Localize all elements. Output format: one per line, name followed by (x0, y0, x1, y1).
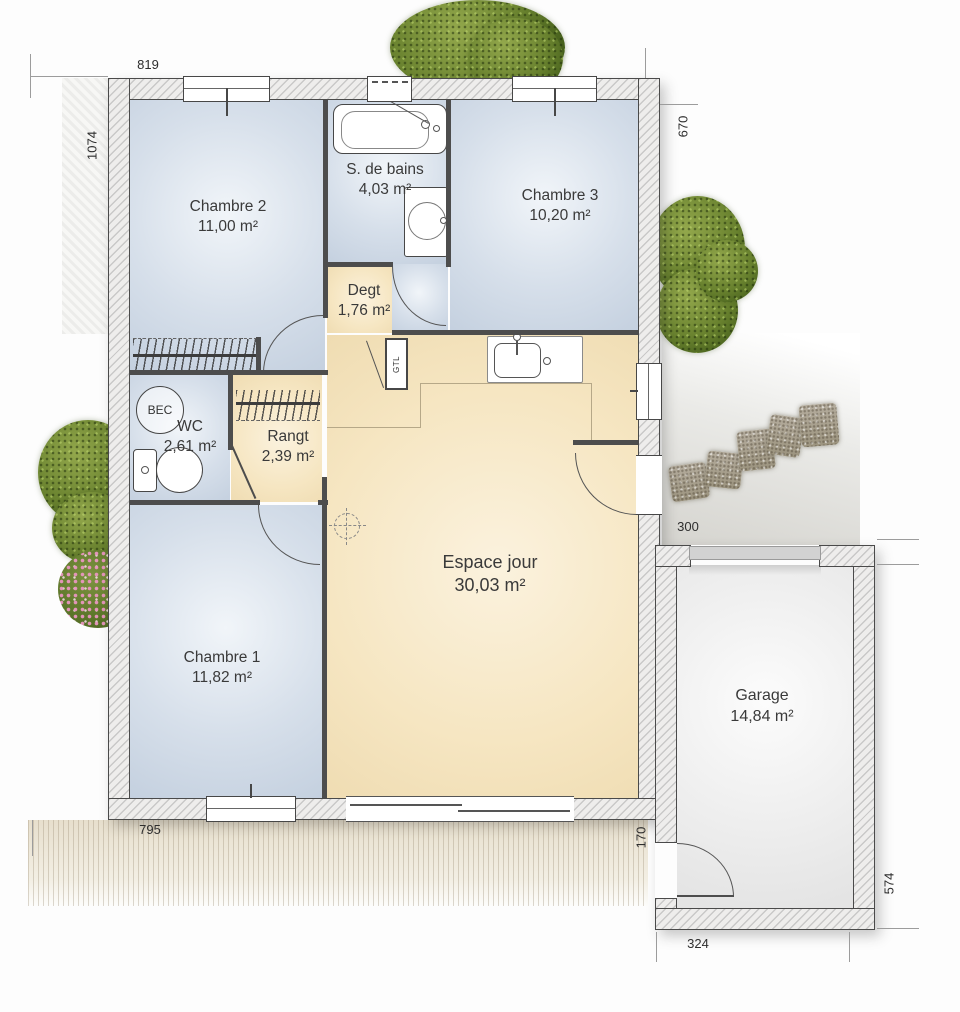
dim-right-top-height: 670 (676, 105, 691, 149)
room-area: 2,61 m² (142, 437, 238, 457)
window-kitchen (636, 363, 662, 420)
bec-label: BEC (148, 403, 173, 417)
stepping-stone (798, 402, 840, 447)
room-name: Chambre 3 (470, 186, 650, 206)
room-label-espace-jour: Espace jour 30,03 m² (392, 551, 588, 598)
dim-top-width: 819 (120, 57, 176, 72)
dimension-line (30, 54, 31, 98)
dimension-line (645, 48, 646, 78)
floor-plan: BEC GTL (0, 0, 960, 1012)
room-area: 10,20 m² (470, 206, 650, 226)
bush-right-lobe (696, 240, 758, 302)
window-mullion-tick (630, 390, 638, 392)
room-area: 2,39 m² (240, 447, 336, 467)
room-name: Chambre 1 (132, 648, 312, 668)
interior-wall (322, 505, 327, 798)
interior-wall (112, 370, 328, 375)
dimension-line (877, 564, 919, 565)
dimension-line (656, 932, 657, 962)
crosshair-symbol (334, 513, 360, 539)
dim-bottom-width: 795 (122, 822, 178, 837)
gtl-box: GTL (385, 338, 408, 390)
dimension-line (30, 76, 108, 77)
kitchen-sink-unit (487, 336, 583, 383)
interior-wall (322, 477, 327, 505)
closet-rangt (236, 390, 320, 421)
window-midline (207, 808, 295, 809)
kitchen-drain (543, 357, 551, 365)
sliding-panel-line (350, 804, 462, 806)
interior-wall (112, 500, 260, 505)
closet-rail (236, 402, 320, 405)
garage-wall-top (655, 545, 691, 567)
room-area: 11,00 m² (138, 217, 318, 237)
room-label-rangt: Rangt 2,39 m² (240, 427, 336, 467)
kitchen-counter-line (591, 383, 592, 441)
room-name: Chambre 2 (138, 197, 318, 217)
toilet-button (141, 466, 149, 474)
room-area: 11,82 m² (132, 668, 312, 688)
kitchen-faucet-stem (516, 341, 518, 355)
kitchen-counter-line (420, 383, 421, 428)
room-name: Rangt (240, 427, 336, 447)
kitchen-counter-line (327, 427, 421, 428)
dim-path-width: 300 (666, 519, 710, 534)
side-path (62, 78, 108, 334)
dimension-line (877, 539, 919, 540)
door-leaf-garage (677, 895, 734, 897)
bathtub (333, 104, 447, 154)
entrance-opening (636, 455, 662, 515)
room-label-degt: Degt 1,76 m² (312, 281, 416, 321)
interior-wall (392, 330, 638, 335)
room-name: S. de bains (320, 160, 450, 180)
kitchen-counter-line (420, 383, 592, 384)
dimension-line (877, 928, 919, 929)
room-name: Degt (312, 281, 416, 301)
closet-rail (133, 354, 257, 357)
crosshair-line (329, 525, 366, 526)
room-name: WC (142, 417, 238, 437)
window-dashes (372, 81, 408, 83)
sliding-panel-line (458, 810, 570, 812)
dim-left-height: 1074 (85, 124, 100, 168)
room-area: 30,03 m² (392, 574, 588, 597)
room-area: 1,76 m² (312, 301, 416, 321)
dimension-line (849, 932, 850, 962)
window-bathroom (367, 76, 412, 102)
garage-wall-right (853, 545, 875, 930)
exterior-wall-left (108, 78, 130, 820)
interior-wall (323, 262, 393, 267)
window-mullion-tick (226, 88, 228, 116)
closet-chambre2 (133, 338, 257, 371)
room-area: 14,84 m² (672, 707, 852, 728)
crosshair-line (346, 508, 347, 545)
dimension-line (32, 820, 33, 856)
garage-wall-bottom (655, 908, 875, 930)
window-chambre1 (206, 796, 296, 822)
room-name: Espace jour (392, 551, 588, 574)
room-label-sdb: S. de bains 4,03 m² (320, 160, 450, 200)
window-mullion-tick (554, 88, 556, 116)
dim-garage-height: 574 (882, 862, 897, 906)
window-midline (648, 364, 649, 419)
room-name: Garage (672, 686, 852, 707)
dim-house-garage-gap: 170 (634, 816, 649, 860)
entrance-wall-stub (573, 440, 640, 445)
closet-cheek-wall (256, 337, 261, 373)
room-label-chambre3: Chambre 3 10,20 m² (470, 186, 650, 226)
garage-door-shade (689, 565, 821, 575)
terrace-deck (28, 820, 648, 906)
garage-door (689, 546, 821, 560)
room-label-chambre2: Chambre 2 11,00 m² (138, 197, 318, 237)
bathtub-faucet (433, 125, 440, 132)
dim-garage-width: 324 (670, 936, 726, 951)
window-mullion-tick (250, 784, 252, 798)
room-area: 4,03 m² (320, 180, 450, 200)
garage-wall-top (819, 545, 875, 567)
gtl-label: GTL (392, 355, 401, 374)
room-label-wc: WC 2,61 m² (142, 417, 238, 457)
sliding-bay-window (346, 796, 574, 822)
room-label-garage: Garage 14,84 m² (672, 686, 852, 728)
room-label-chambre1: Chambre 1 11,82 m² (132, 648, 312, 688)
